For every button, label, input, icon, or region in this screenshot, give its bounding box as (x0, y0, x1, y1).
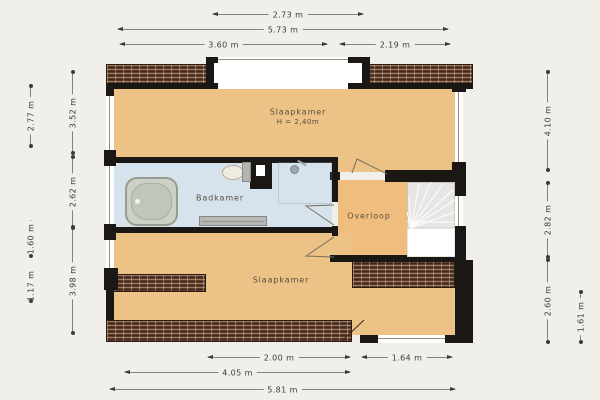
landing-label: Overloop (347, 212, 391, 221)
dim-right-inner-top: 4.10 m (547, 72, 548, 170)
dim-top-right: 2.19 m (340, 44, 450, 45)
dim-right-inner-mid: 2.82 m (547, 183, 548, 257)
dim-bottom-total: 5.81 m (110, 389, 455, 390)
bedroom-top-height-note: H = 2,40m (277, 118, 319, 126)
dim-top-left: 3.60 m (120, 44, 327, 45)
bathroom-label: Badkamer (196, 194, 244, 203)
toilet-cistern (242, 162, 251, 182)
dim-left-inner-mid: 2.62 m (72, 157, 73, 227)
bedroom-bottom-label: Slaapkamer (253, 276, 310, 285)
dim-top-total: 5.73 m (118, 29, 448, 30)
shower-head-icon (290, 165, 299, 174)
bathtub (125, 177, 178, 226)
dim-bottom-left: 2.00 m (208, 357, 350, 358)
floorplan: Slaapkamer H = 2,40m Badkamer Overloop S… (0, 0, 600, 400)
dim-right-outer-bottom: 1.61 m (580, 292, 581, 342)
dim-left-inner-top: 3.52 m (72, 72, 73, 153)
dim-top-window: 2.73 m (213, 14, 363, 15)
dim-left-outer-mid: 1.60 m (30, 222, 31, 256)
shower-area (278, 162, 332, 204)
radiator (199, 216, 267, 226)
dim-right-inner-bottom: 2.60 m (547, 260, 548, 342)
dim-bottom-mid: 4.05 m (125, 372, 350, 373)
bedroom-top-label: Slaapkamer (270, 108, 327, 117)
dim-left-inner-bottom: 3.98 m (72, 228, 73, 333)
dim-left-outer-top: 2.77 m (30, 86, 31, 146)
bathtub-drain (135, 199, 140, 204)
dim-left-outer-bottom: 1.17 m (30, 271, 31, 301)
toilet (222, 165, 244, 180)
dim-bottom-right: 1.64 m (362, 357, 452, 358)
